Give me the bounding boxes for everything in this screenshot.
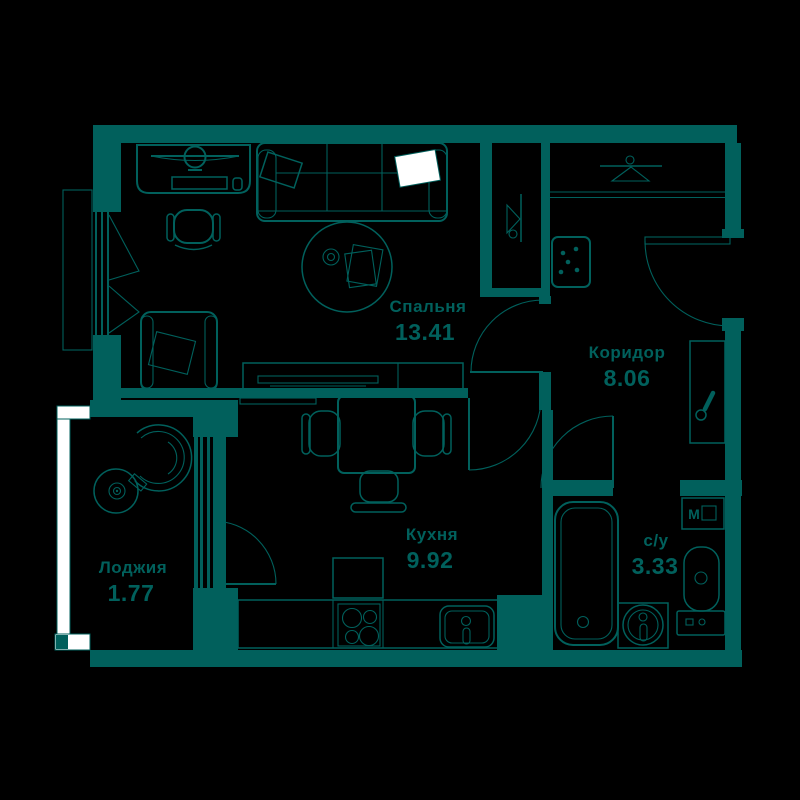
toilet-flush-button (699, 619, 705, 625)
panel-dot (559, 270, 564, 275)
entry-door (645, 237, 730, 326)
bathroom-sink-bowl (623, 605, 663, 645)
pillow (148, 332, 195, 375)
washing-machine-door (702, 506, 716, 520)
bathtub-inner (561, 508, 612, 639)
loggia-glazing-line (207, 437, 210, 588)
dining-table (338, 396, 415, 473)
dining-set (302, 396, 451, 512)
toilet-drain (695, 572, 707, 584)
kitchen-door (469, 398, 541, 470)
tv-console (243, 363, 463, 390)
panel-dot (575, 268, 580, 273)
mirror-handle (705, 393, 713, 409)
armchair (141, 312, 217, 397)
loggia-glazing-corner-top (57, 406, 90, 419)
room-area: 9.92 (407, 547, 454, 573)
wall-closet-bottom (480, 288, 550, 297)
window-casement-icon (109, 286, 139, 333)
wall-bathroom-west-thick (497, 595, 553, 650)
kitchen-counter (238, 398, 498, 648)
chair-seat (309, 411, 340, 456)
desk (137, 145, 250, 193)
stove-burner (360, 627, 379, 646)
armchair-armrest (205, 316, 217, 388)
wall-closet-west (480, 143, 492, 297)
stove-burner (343, 609, 362, 628)
apartment-floor-plan: М Спальня 13.41 Коридор 8.06 Кухня 9.92 … (0, 0, 800, 800)
kitchen-tall-cabinet (333, 558, 383, 598)
loggia-furniture (94, 425, 192, 513)
pillow (260, 152, 302, 188)
bathtub-drain (578, 617, 589, 628)
toilet (677, 547, 725, 635)
bathroom-sink (618, 603, 668, 648)
kitchen-upper-cabinet (240, 398, 316, 404)
electrical-panel (552, 237, 590, 287)
kitchen-sink-bowl (445, 611, 489, 643)
window-outer-ledge (63, 190, 92, 350)
sofa-armrest (258, 150, 276, 218)
mirror (690, 341, 725, 443)
hanger-hook (626, 156, 634, 164)
stove (338, 604, 380, 646)
wall-right-lower (725, 327, 741, 650)
cup-icon (116, 490, 118, 492)
hanger-icon (507, 205, 520, 233)
tv-icon (258, 376, 378, 383)
wall-top (93, 125, 737, 143)
window-casement-icon (109, 215, 139, 280)
door-swing-arc (471, 300, 543, 372)
room-area: 3.33 (632, 553, 679, 579)
room-label-bathroom: с/у 3.33 (632, 531, 679, 579)
room-name: Кухня (406, 525, 458, 544)
bedroom-window (63, 190, 139, 350)
sofa (257, 143, 447, 221)
wall-loggia-east-thin (194, 437, 198, 588)
hanger-icon (612, 167, 649, 181)
electrical-panel-icon (552, 237, 590, 287)
office-chair-base (175, 245, 212, 250)
rug (302, 222, 392, 312)
room-label-bedroom: Спальня 13.41 (390, 297, 467, 345)
loggia-window-block (213, 437, 226, 588)
office-chair-seat (174, 210, 213, 243)
bathtub (555, 502, 618, 645)
room-area: 8.06 (604, 365, 651, 391)
room-name: Лоджия (99, 558, 167, 577)
cup-icon (323, 249, 339, 265)
door-swing-arc (645, 241, 730, 326)
room-name: Коридор (589, 343, 666, 362)
mirror-icon (690, 341, 725, 443)
room-label-loggia: Лоджия 1.77 (99, 558, 167, 606)
wall-loggia-north (90, 400, 238, 417)
stove-burner (346, 631, 359, 644)
wall-left-upper (93, 125, 121, 212)
bathtub-outline (555, 502, 618, 645)
wall-kitchen-west-bottom (193, 588, 238, 650)
door-swing-arc (469, 398, 541, 470)
wall-corridor-west (541, 143, 550, 303)
panel-dot (574, 247, 579, 252)
chair-seat (360, 471, 398, 502)
panel-dot (566, 260, 571, 265)
keyboard-icon (172, 177, 227, 189)
lounge-chair-cushion (168, 442, 177, 474)
chair-back (351, 503, 406, 512)
corridor-wardrobe (548, 156, 725, 198)
room-label-kitchen: Кухня 9.92 (406, 525, 458, 573)
sink-faucet-icon (639, 613, 647, 621)
bedroom-door (470, 300, 543, 372)
sink-faucet-icon (640, 624, 647, 641)
toilet-flush-button (686, 619, 693, 625)
chair-seat (413, 411, 444, 456)
panel-dot (561, 251, 566, 256)
loggia-glazing (55, 406, 90, 650)
loggia-glazing-post (56, 635, 68, 649)
loggia-glazing-line (200, 437, 203, 588)
wall-bottom (90, 650, 742, 667)
room-area: 1.77 (108, 580, 155, 606)
kitchen-sink (440, 606, 494, 647)
toilet-tank (677, 611, 725, 635)
bedroom-closet (507, 194, 521, 242)
room-name: с/у (643, 531, 668, 550)
washing-machine-label: М (688, 506, 700, 522)
room-area: 13.41 (395, 319, 455, 345)
room-name: Спальня (390, 297, 467, 316)
entry-door-leaf (645, 237, 730, 244)
office-chair-armrest (213, 214, 220, 241)
room-label-corridor: Коридор 8.06 (589, 343, 666, 391)
washing-machine: М (682, 498, 724, 529)
office-chair-armrest (167, 214, 174, 241)
pillow-white (395, 150, 441, 188)
hanger-hook (509, 230, 517, 238)
armchair-outline (141, 312, 217, 392)
toilet-bowl (684, 547, 719, 611)
loggia-glazing-left (57, 419, 70, 635)
kitchen-counter-run (238, 600, 498, 648)
mouse-icon (233, 178, 242, 190)
bathroom-sink-bowl (628, 610, 658, 640)
wall-bathroom-north-left (542, 480, 613, 496)
office-chair (167, 210, 220, 250)
sink-faucet-icon (462, 617, 471, 626)
wall-kitchen-west-top (193, 417, 238, 437)
lounge-chair (140, 431, 184, 483)
wall-right-upper (725, 143, 741, 237)
sink-faucet-icon (463, 628, 470, 644)
cup-icon (328, 254, 335, 261)
stove-burner (364, 611, 377, 624)
mirror-handle (696, 410, 706, 420)
